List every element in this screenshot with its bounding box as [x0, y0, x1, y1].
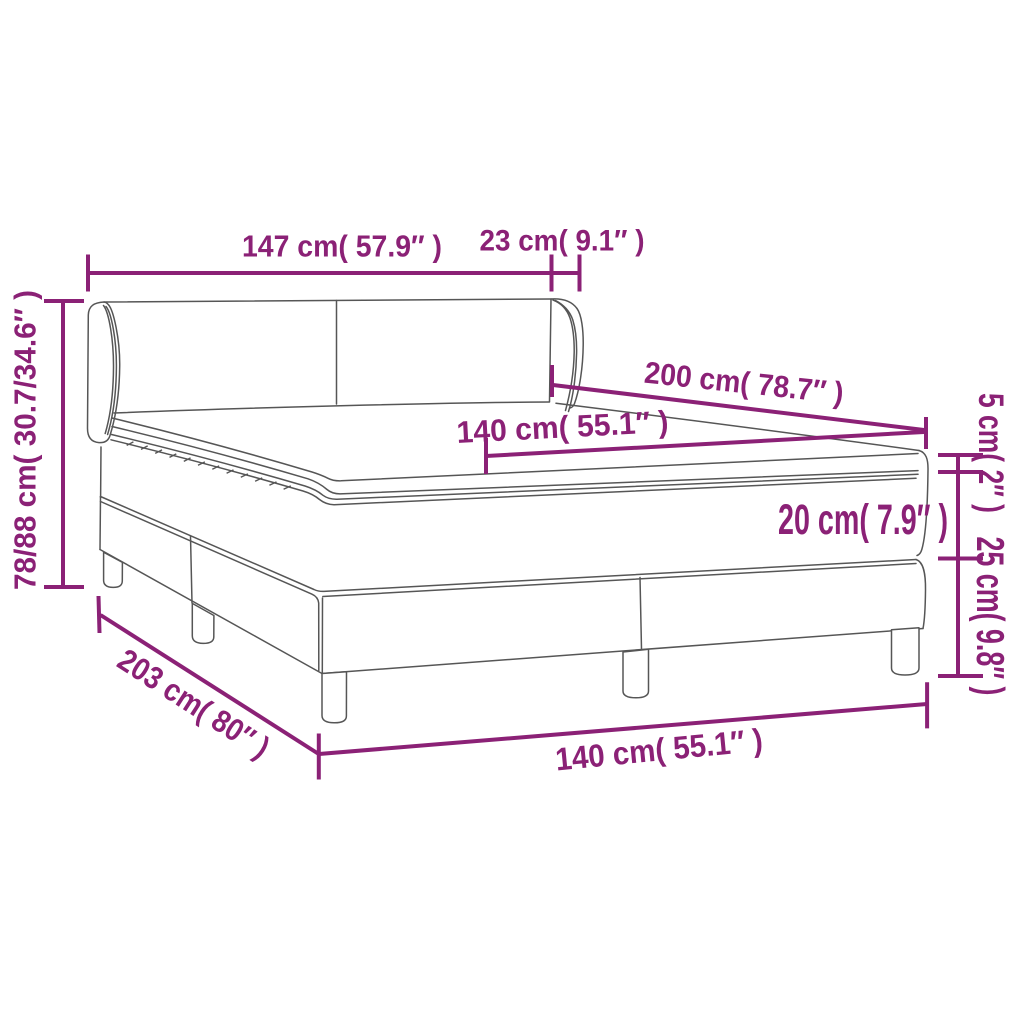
svg-text:23 cm( 9.1″ ): 23 cm( 9.1″ ) — [480, 225, 645, 258]
svg-text:147 cm( 57.9″ ): 147 cm( 57.9″ ) — [242, 229, 442, 264]
svg-text:78/88 cm( 30.7/34.6″ ): 78/88 cm( 30.7/34.6″ ) — [9, 290, 43, 590]
svg-text:20 cm( 7.9″ ): 20 cm( 7.9″ ) — [778, 496, 948, 544]
svg-text:5 cm( 2″ ): 5 cm( 2″ ) — [971, 393, 1011, 513]
svg-text:25 cm( 9.8″ ): 25 cm( 9.8″ ) — [968, 537, 1011, 696]
